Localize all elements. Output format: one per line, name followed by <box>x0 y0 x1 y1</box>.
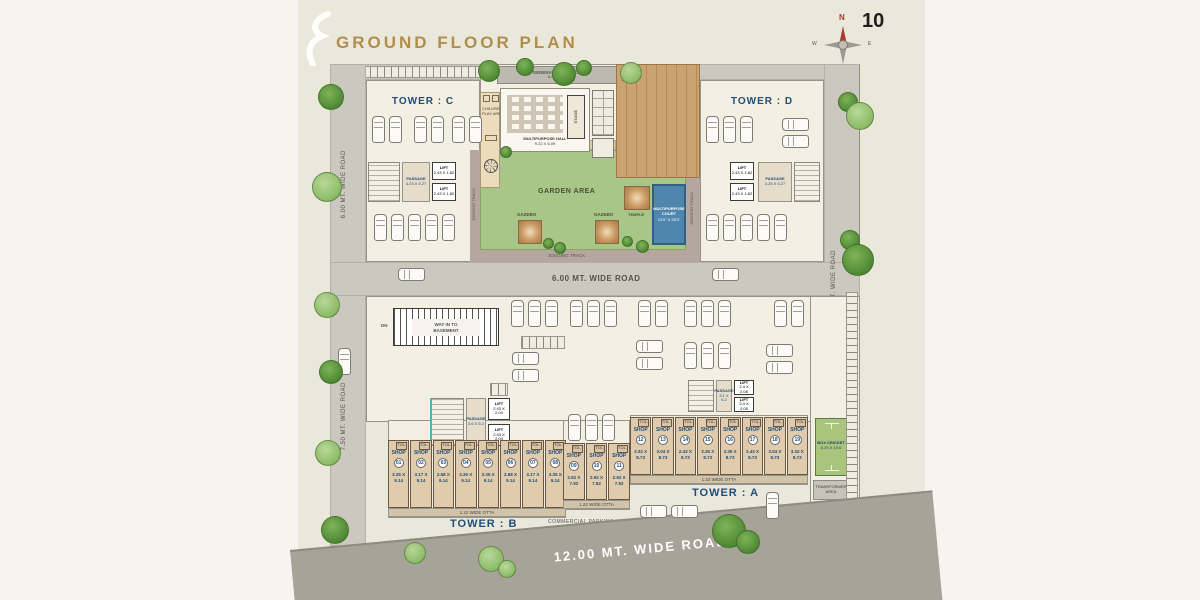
car-icon <box>740 214 753 241</box>
car-icon <box>391 214 404 241</box>
shop-unit: TOL.SHOP032.58 X9.14 <box>433 440 454 508</box>
tower-c-lift-2: LIFT 2.43 X 1.82 <box>432 183 456 201</box>
shop-unit: TOL.SHOP053.35 X9.14 <box>478 440 499 508</box>
tower-a-stairs <box>688 380 714 412</box>
shop-label: SHOP <box>389 450 408 456</box>
shop-label: SHOP <box>676 427 695 433</box>
shop-toilet-box: TOL. <box>508 442 519 450</box>
shop-dimension: 2.92 X7.92 <box>564 475 584 486</box>
shop-dimension: 3.17 X9.14 <box>523 472 542 483</box>
lift-dim: 2.43 X 2.04 <box>489 407 509 416</box>
hall-dim: 9.22 X 6.09 <box>501 142 589 147</box>
tower-c-label: TOWER : C <box>366 96 480 107</box>
car-icon <box>655 300 668 327</box>
tower-d-stairs <box>794 162 820 202</box>
car-icon <box>706 214 719 241</box>
shop-unit: TOL.SHOP133.04 X8.73 <box>652 417 673 475</box>
otta-tower-b: 1.22 WIDE OTTA <box>388 508 566 517</box>
tree-icon <box>500 146 512 158</box>
shop-dimension: 3.17 X9.14 <box>411 472 430 483</box>
parking-row <box>706 116 753 143</box>
shop-label: SHOP <box>631 427 650 433</box>
ramp-dn-label: DN <box>381 323 388 328</box>
car-icon <box>408 214 421 241</box>
parking-row <box>636 340 663 370</box>
car-icon <box>442 214 455 241</box>
parking-row <box>706 214 787 241</box>
car-icon <box>718 300 731 327</box>
shop-number: 08 <box>550 458 560 468</box>
car-icon <box>425 214 438 241</box>
shop-dimension: 2.58 X9.14 <box>501 472 520 483</box>
page-title: GROUND FLOOR PLAN <box>336 33 578 53</box>
car-icon <box>511 300 524 327</box>
shop-unit: TOL.SHOP073.17 X9.14 <box>522 440 543 508</box>
shop-toilet-box: TOL. <box>396 442 407 450</box>
car-icon <box>766 344 793 357</box>
shop-row-middle: TOL.SHOP092.92 X7.92TOL.SHOP102.92 X7.92… <box>563 443 630 500</box>
car-icon <box>684 342 697 369</box>
cricket-crease-top <box>825 423 839 424</box>
box-cricket-dim: 5.29 X 19.6 <box>816 446 846 451</box>
shop-number: 14 <box>680 435 690 445</box>
shop-toilet-box: TOL. <box>572 445 583 453</box>
road-left-bottom-label: 7.50 MT. WIDE ROAD <box>341 382 348 450</box>
shop-toilet-box: TOL. <box>706 419 717 427</box>
shop-dimension: 3.04 X8.73 <box>653 449 672 460</box>
tower-c-lift-1: LIFT 2.43 X 1.82 <box>432 162 456 180</box>
parking-row <box>640 505 698 518</box>
parking-row <box>684 300 731 327</box>
car-icon <box>671 505 698 518</box>
car-icon <box>545 300 558 327</box>
shop-toilet-box: TOL. <box>464 442 475 450</box>
tree-icon <box>636 240 649 253</box>
temple <box>624 186 650 210</box>
parking-row <box>684 342 731 369</box>
car-icon <box>640 505 667 518</box>
car-icon <box>512 369 539 382</box>
parking-row <box>568 414 615 441</box>
car-icon <box>766 492 779 519</box>
shop-label: SHOP <box>698 427 717 433</box>
shop-number: 18 <box>770 435 780 445</box>
tree-icon <box>543 238 554 249</box>
tower-d-lift-2: LIFT 2.43 X 1.82 <box>730 183 754 201</box>
lift-dim: 2.43 X 1.82 <box>434 171 454 176</box>
parking-row <box>374 214 455 241</box>
shop-label: SHOP <box>788 427 807 433</box>
toilet-block <box>592 90 614 136</box>
shop-label: SHOP <box>456 450 475 456</box>
tree-icon <box>478 60 500 82</box>
shop-toilet-box: TOL. <box>486 442 497 450</box>
shop-unit: TOL.SHOP092.92 X7.92 <box>563 443 585 500</box>
shop-dimension: 3.04 X8.73 <box>765 449 784 460</box>
car-icon <box>512 352 539 365</box>
basement-label-2: BASEMENT <box>412 328 480 333</box>
tower-a-passage: PASSAGE 3.1 X 6.2 <box>716 380 732 412</box>
shop-unit: TOL.SHOP153.35 X8.73 <box>697 417 718 475</box>
tower-b-lift-1: LIFT 2.43 X 2.04 <box>488 398 510 420</box>
shop-number: 16 <box>725 435 735 445</box>
shop-label: SHOP <box>564 453 584 459</box>
car-icon <box>636 340 663 353</box>
shop-unit: TOL.SHOP013.35 X9.14 <box>388 440 409 508</box>
gazebo-1-label: GAZEBO <box>517 212 536 217</box>
tree-icon <box>846 102 874 130</box>
shop-number: 06 <box>506 458 516 468</box>
car-icon <box>791 300 804 327</box>
shop-number: 15 <box>703 435 713 445</box>
shop-unit: TOL.SHOP023.17 X9.14 <box>410 440 431 508</box>
tree-icon <box>498 560 516 578</box>
shop-number: 05 <box>483 458 493 468</box>
tower-a-lift-2: LIFT 2.4 X 2.05 <box>734 397 754 412</box>
basement-ramp: WAY IN TO BASEMENT <box>393 308 499 346</box>
tree-icon <box>321 516 349 544</box>
car-icon <box>602 414 615 441</box>
basement-ramp-label: WAY IN TO BASEMENT <box>412 319 480 336</box>
gazebo-1 <box>518 220 542 244</box>
car-icon <box>398 268 425 281</box>
parking-row <box>774 300 804 327</box>
shop-unit: TOL.SHOP193.32 X8.73 <box>787 417 808 475</box>
car-icon <box>570 300 583 327</box>
tree-icon <box>552 62 576 86</box>
jogging-track-bottom-label: JOGGING TRACK <box>548 253 585 258</box>
tower-a-label: TOWER : A <box>692 487 759 499</box>
shop-number: 01 <box>394 458 404 468</box>
parking-row <box>712 268 739 281</box>
tower-a-lift-1: LIFT 2.4 X 2.05 <box>734 380 754 395</box>
road-left-top-label: 6.00 MT. WIDE ROAD <box>341 150 348 218</box>
parking-row <box>782 118 809 148</box>
page-number: 10 <box>862 10 884 33</box>
shop-number: 04 <box>461 458 471 468</box>
car-icon <box>528 300 541 327</box>
car-icon <box>723 214 736 241</box>
compass-e-label: E <box>868 42 871 48</box>
car-icon <box>604 300 617 327</box>
shop-label: SHOP <box>653 427 672 433</box>
tree-icon <box>842 244 874 276</box>
road-bottom-label: 12.00 MT. WIDE ROAD <box>553 534 728 565</box>
garden-label: GARDEN AREA <box>538 188 595 196</box>
shop-dimension: 2.58 X9.14 <box>434 472 453 483</box>
shop-unit: TOL.SHOP112.92 X7.92 <box>608 443 630 500</box>
shop-dimension: 3.32 X8.73 <box>788 449 807 460</box>
tree-icon <box>576 60 592 76</box>
car-icon <box>568 414 581 441</box>
decorative-swirl-icon <box>300 8 336 66</box>
shop-toilet-box: TOL. <box>683 419 694 427</box>
gazebo-2-label: GAZEBO <box>594 212 613 217</box>
multipurpose-hall: STAGE MULTIPURPOSE HALL 9.22 X 6.09 <box>500 88 590 152</box>
shop-toilet-box: TOL. <box>531 442 542 450</box>
shop-toilet-box: TOL. <box>661 419 672 427</box>
shop-label: SHOP <box>743 427 762 433</box>
tower-d-label: TOWER : D <box>700 96 824 107</box>
shop-dimension: 2.92 X7.92 <box>609 475 629 486</box>
tree-icon <box>554 242 566 254</box>
shop-toilet-box: TOL. <box>773 419 784 427</box>
car-icon <box>723 116 736 143</box>
car-icon <box>740 116 753 143</box>
shop-label: SHOP <box>434 450 453 456</box>
lift-dim: 2.43 X 1.82 <box>732 192 752 197</box>
shop-unit: TOL.SHOP163.35 X8.73 <box>720 417 741 475</box>
car-icon <box>684 300 697 327</box>
jogging-track-left-label: JOGGING TRACK <box>472 188 477 221</box>
compass-n-label: N <box>839 13 845 22</box>
shop-row-tower-a: TOL.SHOP123.32 X8.73TOL.SHOP133.04 X8.73… <box>630 417 808 475</box>
tower-c-stairs <box>368 162 400 202</box>
shop-label: SHOP <box>587 453 607 459</box>
car-icon <box>431 116 444 143</box>
hall-chairs <box>507 95 563 133</box>
temple-label: TEMPLE <box>628 213 644 218</box>
parking-row <box>766 492 779 519</box>
play-equipment <box>485 135 497 141</box>
shop-dimension: 2.92 X7.92 <box>587 475 607 486</box>
shop-row-tower-b: TOL.SHOP013.35 X9.14TOL.SHOP023.17 X9.14… <box>388 440 566 508</box>
shop-toilet-box: TOL. <box>795 419 806 427</box>
gazebo-2 <box>595 220 619 244</box>
parking-row <box>570 300 617 327</box>
tower-b-label: TOWER : B <box>450 518 517 530</box>
tower-d-lift-1: LIFT 2.43 X 1.82 <box>730 162 754 180</box>
shop-label: SHOP <box>721 427 740 433</box>
shop-dimension: 2.43 X8.73 <box>676 449 695 460</box>
shop-toilet-box: TOL. <box>728 419 739 427</box>
shop-number: 10 <box>592 461 602 471</box>
tree-icon <box>318 84 344 110</box>
road-middle-label: 6.00 MT. WIDE ROAD <box>552 274 641 283</box>
shop-number: 17 <box>748 435 758 445</box>
compass-w-label: W <box>812 42 817 48</box>
cricket-wicket-bottom <box>831 465 832 471</box>
shop-dimension: 3.32 X8.73 <box>631 449 650 460</box>
tower-b-passage-dim: 3.6 X 5.2 <box>468 422 484 427</box>
tower-b-passage: PASSAGE 3.6 X 5.2 <box>466 398 486 446</box>
tree-icon <box>312 172 342 202</box>
tower-d-passage-dim: 4.25 X 5.27 <box>765 182 785 187</box>
car-icon <box>701 300 714 327</box>
lift-dim: 2.4 X 2.05 <box>735 385 753 394</box>
car-icon <box>701 342 714 369</box>
tree-icon <box>404 542 426 564</box>
shop-toilet-box: TOL. <box>594 445 605 453</box>
shop-label: SHOP <box>523 450 542 456</box>
car-icon <box>757 214 770 241</box>
lift-dim: 2.43 X 1.82 <box>732 171 752 176</box>
transformer-label-2: AREA <box>826 490 837 495</box>
car-icon <box>585 414 598 441</box>
meter-room <box>490 383 508 396</box>
shop-unit: TOL.SHOP102.92 X7.92 <box>586 443 608 500</box>
parking-row <box>512 352 539 382</box>
parking-row <box>766 344 793 374</box>
shop-dimension: 3.35 X9.14 <box>389 472 408 483</box>
shop-number: 12 <box>636 435 646 445</box>
utility-room <box>592 138 614 158</box>
car-icon <box>636 357 663 370</box>
otta-tower-a: 1.22 WIDE OTTA <box>630 475 808 484</box>
box-cricket-label: BOX CRICKET 5.29 X 19.6 <box>816 441 846 450</box>
two-wheeler-parking-mid <box>521 336 565 349</box>
stage: STAGE <box>567 95 585 139</box>
shop-toilet-box: TOL. <box>617 445 628 453</box>
car-icon <box>372 116 385 143</box>
merry-go-round-icon <box>484 159 498 173</box>
tree-icon <box>622 236 633 247</box>
lift-dim: 2.4 X 2.05 <box>735 402 753 411</box>
car-icon <box>374 214 387 241</box>
tower-c-passage: PASSAGE 3.23 X 5.27 <box>402 162 430 202</box>
shop-number: 07 <box>528 458 538 468</box>
car-icon <box>389 116 402 143</box>
shop-label: SHOP <box>501 450 520 456</box>
tower-c-passage-dim: 3.23 X 5.27 <box>406 182 426 187</box>
shop-number: 13 <box>658 435 668 445</box>
shop-dimension: 3.35 X8.73 <box>721 449 740 460</box>
car-icon <box>718 342 731 369</box>
shop-number: 02 <box>416 458 426 468</box>
car-icon <box>712 268 739 281</box>
ground-floor-plan-page: GROUND FLOOR PLAN N W E S 10 6.00 MT. WI… <box>0 0 1200 600</box>
parking-row <box>398 268 425 281</box>
tree-icon <box>314 292 340 318</box>
shop-number: 19 <box>792 435 802 445</box>
cricket-crease-bottom <box>825 470 839 471</box>
shop-label: SHOP <box>765 427 784 433</box>
play-equipment <box>492 95 499 102</box>
tree-icon <box>736 530 760 554</box>
tree-icon <box>319 360 343 384</box>
car-icon <box>587 300 600 327</box>
car-icon <box>774 300 787 327</box>
cricket-wicket-top <box>831 423 832 429</box>
car-icon <box>706 116 719 143</box>
car-icon <box>638 300 651 327</box>
car-icon <box>766 361 793 374</box>
shop-label: SHOP <box>411 450 430 456</box>
shop-label: SHOP <box>479 450 498 456</box>
car-icon <box>782 118 809 131</box>
shop-toilet-box: TOL. <box>441 442 452 450</box>
car-icon <box>782 135 809 148</box>
shop-dimension: 3.35 X9.14 <box>479 472 498 483</box>
shop-unit: TOL.SHOP183.04 X8.73 <box>764 417 785 475</box>
parking-row <box>414 116 444 143</box>
shop-toilet-box: TOL. <box>638 419 649 427</box>
parking-row <box>638 300 668 327</box>
lift-dim: 2.43 X 1.82 <box>434 192 454 197</box>
court-dim: 13'0" X 25'0" <box>658 218 681 223</box>
shop-number: 11 <box>614 461 624 471</box>
tower-d-passage: PASSAGE 4.25 X 5.27 <box>758 162 792 202</box>
shop-toilet-box: TOL. <box>419 442 430 450</box>
tower-b-stairs <box>430 398 464 446</box>
otta-middle: 1.22 WIDE OTTA <box>563 500 630 509</box>
play-equipment <box>483 95 490 102</box>
car-icon <box>469 116 482 143</box>
shop-dimension: 3.35 X8.73 <box>698 449 717 460</box>
parking-row <box>452 116 482 143</box>
shop-unit: TOL.SHOP172.43 X8.73 <box>742 417 763 475</box>
tree-icon <box>620 62 642 84</box>
stage-label: STAGE <box>574 110 579 123</box>
shop-number: 09 <box>569 461 579 471</box>
shop-toilet-box: TOL. <box>750 419 761 427</box>
hall-label: MULTIPURPOSE HALL 9.22 X 6.09 <box>501 137 589 146</box>
shop-label: SHOP <box>609 453 629 459</box>
parking-row <box>511 300 558 327</box>
box-cricket: BOX CRICKET 5.29 X 19.6 <box>815 418 847 476</box>
parking-row <box>372 116 402 143</box>
car-icon <box>414 116 427 143</box>
shop-unit: TOL.SHOP043.35 X9.14 <box>455 440 476 508</box>
jogging-track-right-label: JOGGING TRACK <box>690 192 695 225</box>
shop-unit: TOL.SHOP142.43 X8.73 <box>675 417 696 475</box>
shop-number: 03 <box>438 458 448 468</box>
transformer-area: TRANSFORMER AREA <box>813 480 849 500</box>
children-play-area: CHILDREN'S PLAY AREA <box>480 92 500 188</box>
shop-unit: TOL.SHOP062.58 X9.14 <box>500 440 521 508</box>
compass-icon <box>820 22 866 68</box>
multipurpose-court: MULTIPURPOSE COURT 13'0" X 25'0" <box>652 184 686 245</box>
tree-icon <box>516 58 534 76</box>
shop-unit: TOL.SHOP123.32 X8.73 <box>630 417 651 475</box>
tower-a-passage-dim: 3.1 X 6.2 <box>717 394 731 403</box>
car-icon <box>452 116 465 143</box>
shop-dimension: 3.35 X9.14 <box>456 472 475 483</box>
tree-icon <box>315 440 341 466</box>
shop-dimension: 2.43 X8.73 <box>743 449 762 460</box>
two-wheeler-parking-east <box>846 292 858 508</box>
car-icon <box>774 214 787 241</box>
